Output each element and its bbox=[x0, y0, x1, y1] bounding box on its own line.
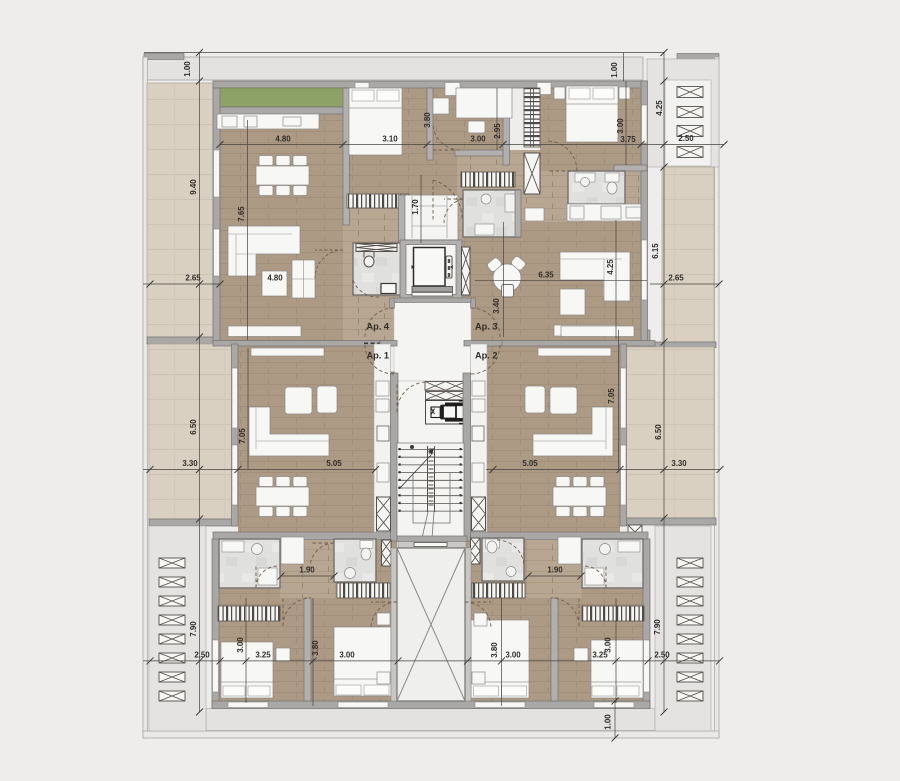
svg-text:7.05: 7.05 bbox=[607, 388, 616, 404]
svg-text:6.15: 6.15 bbox=[651, 243, 660, 259]
svg-text:3.30: 3.30 bbox=[671, 459, 687, 468]
svg-text:4.80: 4.80 bbox=[275, 135, 291, 144]
svg-text:7.90: 7.90 bbox=[189, 621, 198, 637]
svg-text:4.80: 4.80 bbox=[267, 274, 283, 283]
svg-text:3.25: 3.25 bbox=[255, 651, 271, 660]
svg-text:3.30: 3.30 bbox=[182, 459, 198, 468]
svg-text:1.90: 1.90 bbox=[299, 566, 315, 575]
svg-text:1.00: 1.00 bbox=[604, 714, 613, 730]
svg-text:1.90: 1.90 bbox=[547, 566, 563, 575]
svg-text:3.00: 3.00 bbox=[339, 651, 355, 660]
svg-text:2.65: 2.65 bbox=[185, 274, 201, 283]
svg-text:7.65: 7.65 bbox=[237, 206, 246, 222]
svg-text:3.00: 3.00 bbox=[470, 135, 486, 144]
svg-text:Ap. 1: Ap. 1 bbox=[367, 351, 389, 361]
svg-text:5.05: 5.05 bbox=[326, 459, 342, 468]
svg-text:2.50: 2.50 bbox=[194, 651, 210, 660]
svg-text:Ap. 4: Ap. 4 bbox=[367, 322, 390, 332]
svg-text:7.90: 7.90 bbox=[653, 619, 662, 635]
svg-text:6.50: 6.50 bbox=[654, 424, 663, 440]
svg-text:3.80: 3.80 bbox=[311, 640, 320, 656]
svg-text:3.80: 3.80 bbox=[423, 112, 432, 128]
svg-text:2.95: 2.95 bbox=[493, 123, 502, 139]
svg-text:1.00: 1.00 bbox=[610, 62, 619, 78]
svg-text:3.40: 3.40 bbox=[492, 298, 501, 314]
svg-text:6.50: 6.50 bbox=[189, 419, 198, 435]
svg-text:2.50: 2.50 bbox=[678, 134, 694, 143]
svg-text:3.00: 3.00 bbox=[616, 118, 625, 134]
svg-text:4.25: 4.25 bbox=[606, 259, 615, 275]
svg-text:Ap. 2: Ap. 2 bbox=[475, 351, 497, 361]
svg-text:2.50: 2.50 bbox=[654, 651, 670, 660]
svg-text:2.65: 2.65 bbox=[668, 274, 684, 283]
svg-text:1.70: 1.70 bbox=[411, 199, 420, 215]
svg-text:9.40: 9.40 bbox=[189, 179, 198, 195]
svg-text:Ap. 3: Ap. 3 bbox=[475, 322, 497, 332]
svg-text:3.75: 3.75 bbox=[620, 135, 636, 144]
svg-text:3.10: 3.10 bbox=[382, 135, 398, 144]
svg-text:7.05: 7.05 bbox=[238, 428, 247, 444]
svg-text:1.00: 1.00 bbox=[183, 61, 192, 77]
svg-text:3.80: 3.80 bbox=[490, 642, 499, 658]
svg-text:5.05: 5.05 bbox=[522, 459, 538, 468]
svg-text:4.25: 4.25 bbox=[655, 100, 664, 116]
svg-text:3.00: 3.00 bbox=[505, 651, 521, 660]
svg-text:3.00: 3.00 bbox=[236, 637, 245, 653]
svg-text:3.25: 3.25 bbox=[592, 651, 608, 660]
svg-text:6.35: 6.35 bbox=[538, 271, 554, 280]
